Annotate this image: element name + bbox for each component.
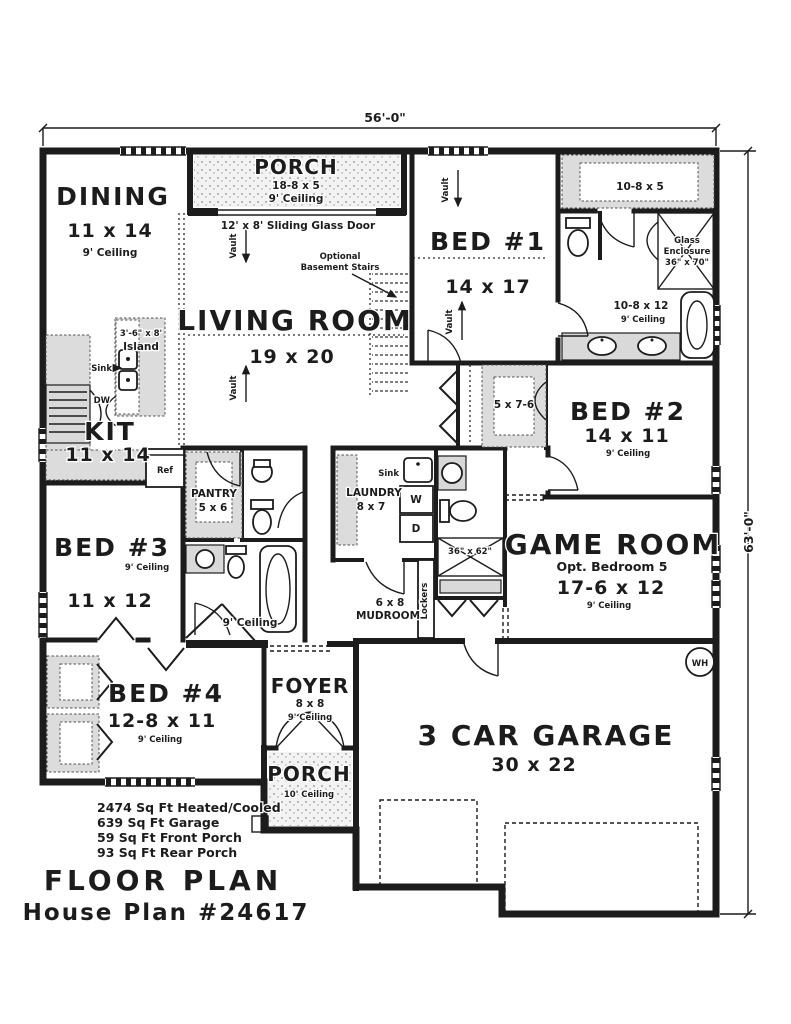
- shower-icon-game: [438, 538, 503, 576]
- title-block: FLOOR PLAN House Plan #24617: [23, 864, 310, 926]
- area-rear-porch: 93 Sq Ft Rear Porch: [97, 845, 237, 860]
- game-bath-fixtures: 36" x 62": [438, 456, 503, 593]
- vault-label-1: Vault: [229, 234, 239, 259]
- door-bed4: [148, 648, 184, 670]
- sliding-glass-door: [188, 208, 406, 216]
- game-size: 17-6 x 12: [557, 577, 665, 599]
- sink-icon-laundry: [404, 458, 432, 482]
- plan-number: House Plan #24617: [23, 900, 310, 926]
- door-garage-entry: [464, 641, 498, 676]
- floor-plan-drawing: 56'-0" 63'-0": [0, 0, 791, 1024]
- room-bed4: BED #4 12-8 x 11 9' Ceiling: [108, 679, 224, 745]
- dryer-label: D: [412, 523, 421, 535]
- front-porch-ceiling: 10' Ceiling: [284, 790, 334, 800]
- kitchen-sink-label: Sink: [91, 364, 112, 374]
- powder-bath-fixtures: [251, 460, 273, 534]
- door-master-bath: [558, 303, 588, 336]
- bed4-name: BED #4: [108, 679, 224, 708]
- vault-label-2: Vault: [229, 376, 239, 401]
- water-heater-label: WH: [692, 659, 709, 669]
- stairs-label-optional: Optional: [320, 252, 361, 262]
- area-summary: 2474 Sq Ft Heated/Cooled 639 Sq Ft Garag…: [97, 800, 281, 860]
- tub-icon-master: [681, 292, 714, 358]
- bed4-closets: [47, 656, 112, 772]
- mudroom-size: 6 x 8: [376, 597, 405, 609]
- room-foyer: FOYER 8 x 8 9' Ceiling: [271, 674, 350, 723]
- room-mudroom: 6 x 8 MUDROOM: [356, 597, 420, 622]
- vanity-icon-gamebath: [438, 456, 466, 490]
- window-left-bed3: [38, 592, 48, 638]
- dimension-width-label: 56'-0": [364, 110, 406, 125]
- double-vanity-icon: [562, 333, 680, 360]
- ref-label: Ref: [157, 466, 173, 476]
- vault-label-4: Vault: [445, 310, 455, 335]
- door-master-closet: [598, 211, 634, 247]
- bed3-ceiling: 9' Ceiling: [125, 563, 169, 573]
- lockers-label: Lockers: [420, 583, 430, 620]
- page-title: FLOOR PLAN: [44, 864, 282, 897]
- garage-name: 3 CAR GARAGE: [418, 719, 675, 752]
- toilet-icon-gamebath: [440, 500, 476, 522]
- glass-enclosure-l2: Enclosure: [664, 247, 711, 257]
- bed4-ceiling: 9' Ceiling: [138, 735, 182, 745]
- area-front-porch: 59 Sq Ft Front Porch: [97, 830, 242, 845]
- laundry-name: LAUNDRY: [346, 487, 402, 499]
- window-bed4-front: [105, 777, 195, 787]
- foyer-name: FOYER: [271, 674, 350, 698]
- window-dining-top: [120, 146, 186, 156]
- kitchen-name: KIT: [84, 417, 136, 446]
- bed1-name: BED #1: [430, 227, 546, 256]
- hall-annotation: 9' Ceiling: [223, 617, 278, 629]
- bed3-size: 11 x 12: [67, 590, 152, 612]
- door-gamebath-1: [438, 600, 466, 616]
- dining-size: 11 x 14: [67, 220, 152, 242]
- window-right-game-2: [711, 580, 721, 608]
- pantry-size: 5 x 6: [199, 502, 228, 514]
- vanity-icon-bath2: [186, 545, 224, 573]
- hall-closet: [440, 370, 458, 444]
- room-dining: DINING 11 x 14 9' Ceiling: [56, 182, 170, 259]
- toilet-icon-powder: [251, 500, 273, 534]
- room-bed3: BED #3 9' Ceiling 11 x 12: [54, 533, 170, 612]
- door-powder: [278, 492, 303, 528]
- rear-porch-ceiling: 9' Ceiling: [269, 193, 324, 205]
- area-heated: 2474 Sq Ft Heated/Cooled: [97, 800, 281, 815]
- rear-porch-name: PORCH: [254, 155, 337, 179]
- dw-label: DW: [94, 396, 111, 406]
- master-bath-size: 10-8 x 12: [614, 300, 669, 312]
- area-garage: 639 Sq Ft Garage: [97, 815, 219, 830]
- window-right-bed2: [711, 466, 721, 494]
- island-size-label: 3'-6" x 8': [120, 329, 162, 339]
- bed2-closet-size: 5 x 7-6: [494, 399, 534, 411]
- living-name: LIVING ROOM: [177, 304, 413, 337]
- game-ceiling: 9' Ceiling: [587, 601, 631, 611]
- door-bed3: [98, 618, 134, 640]
- glass-enclosure-l1: Glass: [674, 236, 700, 246]
- laundry-sink-label: Sink: [378, 469, 399, 479]
- bed2-ceiling: 9' Ceiling: [606, 449, 650, 459]
- water-heater-icon: WH: [686, 648, 714, 676]
- toilet-icon-master: [566, 218, 590, 256]
- pantry-name: PANTRY: [191, 488, 237, 500]
- living-size: 19 x 20: [249, 346, 334, 368]
- window-right-garage: [711, 757, 721, 791]
- dimension-height-label: 63'-0": [741, 511, 756, 553]
- bed4-size: 12-8 x 11: [108, 710, 216, 732]
- sink-icon-powder: [252, 460, 272, 482]
- kitchen-size: 11 x 14: [65, 444, 150, 466]
- foyer-size: 8 x 8: [296, 698, 325, 710]
- dining-name: DINING: [56, 182, 170, 211]
- dimension-top: 56'-0": [39, 110, 720, 146]
- hall-ceiling: 9' Ceiling: [223, 617, 278, 629]
- bed2-size: 14 x 11: [584, 425, 669, 447]
- floor-plan-page: 56'-0" 63'-0": [0, 0, 791, 1024]
- room-garage: 3 CAR GARAGE 30 x 22: [418, 719, 675, 776]
- laundry-size: 8 x 7: [357, 501, 386, 513]
- vault-label-3: Vault: [441, 178, 451, 203]
- dining-ceiling: 9' Ceiling: [83, 247, 138, 259]
- bed1-closet-size: 10-8 x 5: [616, 181, 664, 193]
- bed2-name: BED #2: [570, 397, 686, 426]
- island-label: Island: [123, 341, 159, 353]
- bed3-name: BED #3: [54, 533, 170, 562]
- laundry-fixtures: Sink W D: [337, 455, 433, 545]
- master-bath-ceiling: 9' Ceiling: [621, 315, 665, 325]
- door-bed2: [548, 456, 578, 490]
- sliding-door-label: 12' x 8' Sliding Glass Door: [221, 220, 376, 232]
- dimension-right: 63'-0": [720, 147, 756, 918]
- toilet-icon-bath2: [226, 546, 246, 578]
- mudroom-name: MUDROOM: [356, 610, 420, 622]
- lockers: Lockers: [418, 560, 434, 638]
- door-gamebath-2: [470, 600, 498, 616]
- window-bed1-top: [428, 146, 488, 156]
- front-porch-name: PORCH: [267, 762, 350, 786]
- garage-size: 30 x 22: [491, 754, 576, 776]
- game-name: GAME ROOM: [505, 528, 721, 561]
- door-laundry: [366, 560, 404, 594]
- foyer-ceiling: 9' Ceiling: [288, 713, 332, 723]
- shower-size-label: 36" x 62": [448, 547, 492, 557]
- glass-enclosure-l3: 36" x 70": [665, 258, 709, 268]
- game-alt: Opt. Bedroom 5: [556, 559, 667, 574]
- room-game: GAME ROOM Opt. Bedroom 5 17-6 x 12 9' Ce…: [505, 528, 721, 611]
- garage-features: WH: [380, 648, 714, 913]
- stairs-label-basement: Basement Stairs: [301, 263, 380, 273]
- washer-label: W: [410, 494, 422, 506]
- bed1-size: 14 x 17: [445, 276, 530, 298]
- rear-porch-size: 18-8 x 5: [272, 180, 320, 192]
